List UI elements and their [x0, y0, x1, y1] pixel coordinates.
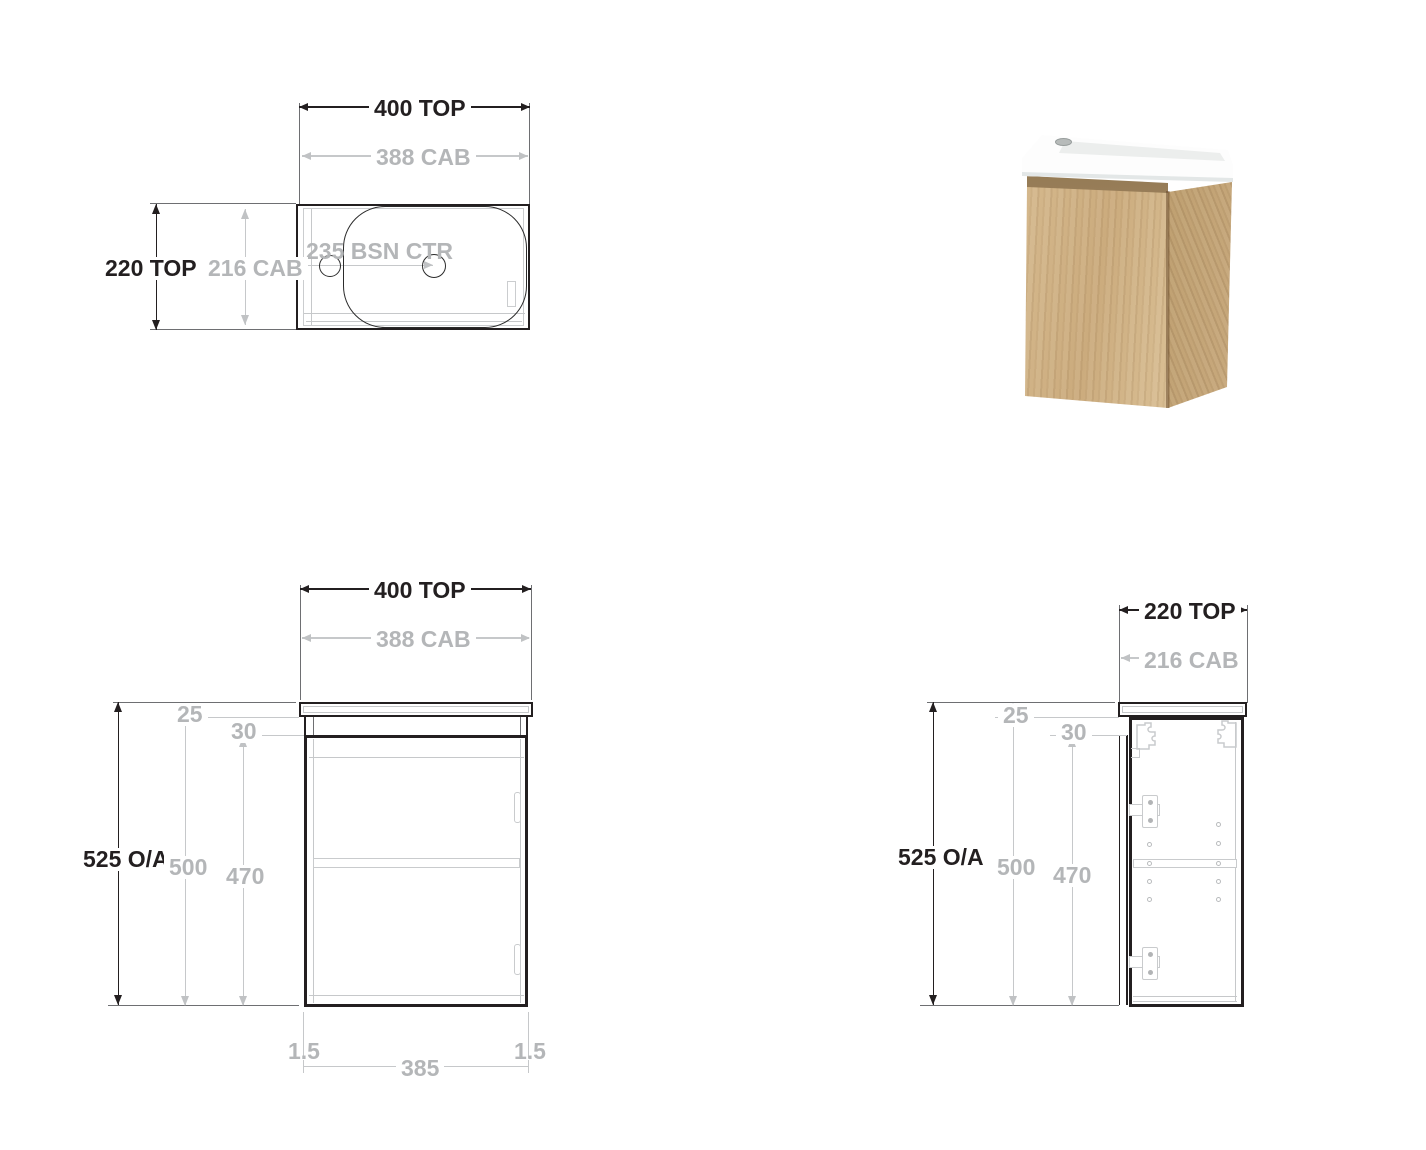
arrow-icon — [152, 320, 160, 330]
door-profile-line — [1119, 735, 1121, 1005]
dim-label-top-depth: 220 TOP — [100, 257, 202, 280]
arrow-icon — [521, 634, 530, 642]
extension-line — [529, 103, 530, 204]
dim-label-cab-depth: 216 CAB — [203, 257, 308, 280]
hinge-screw — [1148, 818, 1153, 823]
dim-label-cab-width: 388 CAB — [371, 628, 476, 651]
dim-label-overall-height: 525 O/A — [78, 848, 174, 871]
door-top-line — [309, 757, 524, 758]
cabinet-front — [304, 735, 528, 1007]
arrow-icon — [239, 996, 247, 1006]
dim-label-door-height: 470 — [1048, 864, 1096, 887]
arrow-icon — [241, 209, 249, 219]
tap-hole — [1055, 138, 1072, 146]
carcass-side-line — [304, 717, 306, 735]
extension-line — [150, 203, 296, 204]
dim-label-top-width: 400 TOP — [369, 579, 471, 602]
bottom-panel-line — [309, 995, 524, 996]
shelf-band — [313, 858, 520, 868]
extension-line — [300, 585, 301, 700]
arrow-icon — [114, 995, 122, 1005]
spec-sheet: 400 TOP 388 CAB 235 BSN CTR 220 TOP 216 — [0, 0, 1426, 1150]
carcass-side-line — [526, 717, 528, 735]
countertop-inner-line — [1122, 706, 1243, 713]
shelf-pin-hole — [1216, 879, 1221, 884]
shelf-pin-hole — [1216, 841, 1221, 846]
countertop — [1118, 702, 1247, 717]
dim-tick — [528, 1060, 529, 1073]
dim-label-cab-depth: 216 CAB — [1139, 649, 1244, 672]
arrow-icon — [519, 152, 528, 160]
dim-label-door-offset: 30 — [226, 720, 262, 743]
arrow-icon — [929, 702, 937, 712]
carcass-inner-line — [313, 717, 314, 735]
dim-label-basin-centre: 235 BSN CTR — [306, 240, 453, 263]
arrow-icon — [299, 103, 308, 111]
hinge-screw — [1148, 952, 1153, 957]
dim-label-top-depth: 220 TOP — [1139, 600, 1241, 623]
arrow-icon — [302, 152, 311, 160]
extension-line — [150, 329, 296, 330]
dim-label-top-thickness: 25 — [172, 703, 208, 726]
shelf-pin-hole — [1216, 897, 1221, 902]
arrow-icon — [1119, 606, 1128, 614]
arrow-icon — [114, 702, 122, 712]
dim-label-cab-width: 388 CAB — [371, 146, 476, 169]
shelf-pin-hole — [1147, 879, 1152, 884]
dim-label-gap-right: 1.5 — [514, 1040, 546, 1063]
arrow-icon — [929, 995, 937, 1005]
overflow-slot — [507, 281, 516, 307]
arrow-icon — [181, 996, 189, 1006]
extension-line — [1247, 605, 1248, 703]
dim-label-gap-left: 1.5 — [288, 1040, 320, 1063]
arrow-icon — [521, 103, 530, 111]
arrow-icon — [1121, 654, 1130, 662]
extension-line — [531, 585, 532, 700]
extension-line — [1119, 605, 1120, 703]
bottom-panel-line — [1133, 996, 1237, 997]
cabinet-side-line — [311, 209, 312, 325]
hanging-bracket-icon — [1215, 720, 1237, 752]
bottom-panel-line — [1133, 1001, 1237, 1002]
dim-tick — [303, 1060, 304, 1073]
extension-line — [299, 103, 300, 204]
hinge-screw — [1148, 800, 1153, 805]
hinge-screw — [1148, 970, 1153, 975]
dim-label-door-width: 385 — [396, 1057, 444, 1080]
shelf-pin-hole — [1147, 842, 1152, 847]
dim-label-cab-height: 500 — [992, 856, 1040, 879]
dim-label-cab-height: 500 — [164, 856, 212, 879]
hinge-tab — [514, 944, 521, 975]
dim-label-overall-height: 525 O/A — [893, 846, 989, 869]
baseline — [108, 1005, 299, 1006]
hinge-tab — [514, 792, 521, 823]
dim-label-door-height: 470 — [221, 865, 269, 888]
bracket-foot — [1131, 748, 1140, 758]
arrow-icon — [152, 204, 160, 214]
shelf-pin-hole — [1147, 861, 1152, 866]
arrow-icon — [241, 315, 249, 325]
baseline — [920, 1005, 1119, 1006]
dim-label-top-thickness: 25 — [998, 704, 1034, 727]
arrow-icon — [300, 585, 309, 593]
door-profile-line — [1126, 735, 1128, 1005]
arrow-icon — [1068, 996, 1076, 1006]
door-edge-line — [313, 739, 314, 1003]
shelf-pin-hole — [1216, 861, 1221, 866]
dim-label-door-offset: 30 — [1056, 721, 1092, 744]
dim-label-top-width: 400 TOP — [369, 97, 471, 120]
carcass-inner-line — [520, 717, 521, 735]
countertop — [299, 702, 533, 717]
arrow-icon — [302, 634, 311, 642]
shelf-pin-hole — [1216, 822, 1221, 827]
countertop-inner-line — [303, 706, 529, 713]
shelf-pin-hole — [1147, 897, 1152, 902]
arrow-icon — [1009, 996, 1017, 1006]
arrow-icon — [522, 585, 531, 593]
